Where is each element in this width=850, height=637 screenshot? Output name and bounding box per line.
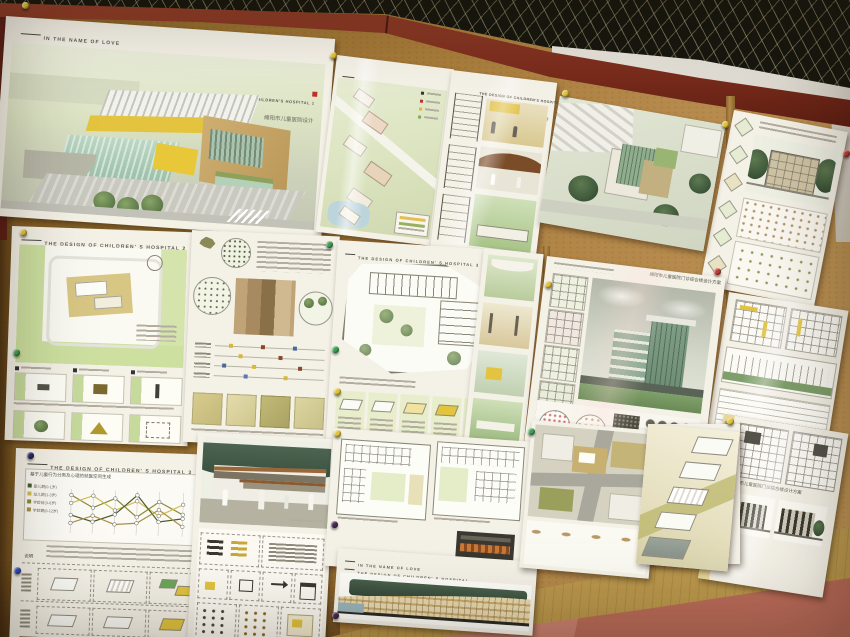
- poster-context-analysis: [183, 230, 340, 448]
- column: [488, 313, 493, 333]
- push-pin-blue: [14, 567, 21, 574]
- diagram-mark: [146, 422, 171, 439]
- row-label: [21, 573, 32, 591]
- mini-diagram: [129, 414, 182, 444]
- row-label: [194, 372, 210, 378]
- massing-cube: [339, 399, 363, 411]
- section-drawing: [337, 572, 532, 631]
- room-wing: [474, 471, 516, 504]
- diagram-mark: [34, 420, 48, 432]
- header-bars: [554, 262, 614, 274]
- context-site-plan: [528, 424, 658, 526]
- plan-tree: [447, 351, 462, 366]
- massing-cube: [403, 403, 427, 415]
- route-node: [261, 345, 265, 349]
- wall-section-detail: [437, 194, 470, 243]
- poster-details-renders: THE DESIGN OF CHILDREN'S HOSPITAL 1 绵阳市儿…: [430, 70, 557, 260]
- legend-bar: [427, 92, 441, 97]
- diagram-mark: [37, 384, 49, 390]
- legend-row: [398, 227, 424, 233]
- wing-glass: [209, 129, 265, 168]
- note-label: 说明: [24, 553, 33, 558]
- legend-chip: [418, 115, 421, 118]
- floor-plan: [785, 431, 843, 492]
- note-row: 说明: [24, 544, 34, 562]
- diagram-cell: [197, 568, 229, 600]
- diamond-plan-icon: [729, 145, 748, 164]
- push-pin-yellow: [545, 281, 552, 288]
- push-pin-yellow: [722, 121, 729, 128]
- push-pin-green: [528, 428, 535, 435]
- axon-map: [320, 77, 447, 239]
- building-cluster: [353, 88, 376, 108]
- green-blob: [318, 297, 327, 306]
- sketch-rows: [523, 520, 648, 574]
- render-thumb-atrium: [474, 350, 528, 397]
- route-node: [238, 354, 242, 358]
- route-line: [214, 365, 324, 371]
- hospital-cluster: [603, 140, 680, 207]
- roof-band: [461, 535, 511, 542]
- building-glass-tower: [644, 319, 690, 389]
- row-label: [195, 342, 211, 348]
- legend-column: [417, 92, 443, 128]
- arrow-head: [283, 581, 288, 589]
- legend-glyphs: [200, 607, 229, 634]
- floor-plan: [731, 423, 789, 484]
- massing-cell: [36, 606, 91, 636]
- massing-cube: [103, 616, 133, 629]
- render-thumb-green: [484, 254, 538, 301]
- row-label: [194, 352, 210, 358]
- push-pin-yellow: [22, 2, 29, 9]
- push-pin-green: [332, 346, 339, 353]
- push-pin-yellow: [562, 90, 569, 97]
- floor-plan-thumb: [729, 299, 787, 349]
- waterfront-building: [338, 205, 361, 225]
- figure: [491, 121, 496, 133]
- hospital-block: [572, 446, 608, 475]
- terrace: [408, 474, 424, 505]
- row-label: [194, 362, 210, 368]
- legend-bar: [426, 100, 440, 105]
- legend-box: [394, 211, 430, 237]
- legend-row: [399, 216, 425, 222]
- figure: [308, 494, 314, 510]
- mini-diagram: [14, 372, 67, 402]
- route-node: [278, 356, 282, 360]
- low-building: [476, 224, 529, 242]
- legend-chip: [421, 92, 424, 95]
- caption-bar: [137, 370, 167, 375]
- site-photo-grid: [234, 278, 296, 337]
- plan-caption: [339, 376, 415, 388]
- yellow-zone: [292, 619, 302, 628]
- poster-long-section: IN THE NAME OF LOVE THE DESIGN OF CHILDR…: [333, 548, 538, 636]
- floor-plan-3f: [432, 441, 525, 521]
- concept-caption: [401, 420, 425, 433]
- diagram-cell: [261, 572, 293, 604]
- mini-diagram: [130, 376, 183, 406]
- elevation-drawing: [773, 500, 828, 547]
- legend-table: [237, 604, 279, 637]
- figure: [258, 489, 265, 509]
- title-dash: [21, 240, 41, 242]
- legend-table: [195, 602, 237, 637]
- diagram-panel: [193, 528, 327, 637]
- poster-exploded-plates: [636, 424, 740, 571]
- yellow-mark: [205, 582, 215, 591]
- road-horizontal: [528, 472, 658, 487]
- flow-text: [268, 543, 317, 563]
- hospital-building: [608, 315, 689, 390]
- diamond-plan-icon: [713, 227, 732, 246]
- push-pin-yellow: [334, 430, 341, 437]
- district-map-thumb: [259, 395, 290, 428]
- render-thumb-landscape: [469, 398, 523, 443]
- figure: [490, 174, 495, 185]
- massing-cube: [47, 614, 77, 627]
- yellow-panel: [489, 101, 520, 115]
- mini-diagram: [72, 374, 125, 404]
- route-node: [222, 363, 226, 367]
- massing-cube: [50, 577, 79, 591]
- road: [538, 198, 713, 231]
- china-map-icon: [199, 236, 216, 249]
- diamond-plan-icon: [734, 117, 753, 136]
- push-pin-purple: [332, 612, 339, 619]
- behavior-chart-panel: 基于儿童行为分类及心理的就医空间生成 婴儿期(0-1岁) 幼儿期(1-3岁) 学…: [23, 468, 215, 547]
- floor-plate: [666, 486, 709, 506]
- route-node: [293, 347, 297, 351]
- building-cluster: [363, 161, 392, 187]
- massing-cube: [159, 579, 178, 588]
- behavior-route-rows: [193, 342, 327, 392]
- yellow-wall: [739, 305, 757, 312]
- legend-table: [279, 607, 321, 637]
- landscape-render: [469, 194, 537, 253]
- plan-notes: [136, 324, 177, 341]
- push-pin-green: [13, 349, 20, 356]
- canopy: [491, 259, 534, 273]
- push-pin-yellow: [334, 388, 341, 395]
- concept-caption: [369, 418, 393, 431]
- massing-cell: [91, 608, 146, 637]
- yellow-bar-glyphs: [231, 541, 248, 558]
- massing-cube: [371, 401, 395, 413]
- push-pin-green: [326, 241, 333, 248]
- white-mass-right: [680, 124, 722, 158]
- diagram-cell: [229, 570, 261, 602]
- caption-chip: [15, 366, 19, 370]
- building-core: [578, 452, 595, 463]
- concept-caption: [433, 422, 457, 435]
- poster-siteplan-analysis: THE DESIGN OF CHILDREN' S HOSPITAL 2: [5, 226, 195, 446]
- district-map-thumb: [293, 397, 324, 430]
- figure: [516, 177, 521, 188]
- diagram-mark: [90, 422, 108, 435]
- interior-render-warm: [482, 98, 549, 147]
- push-pin-yellow: [330, 52, 337, 59]
- district-map-thumb: [225, 394, 256, 427]
- push-pin-yellow: [727, 418, 734, 425]
- floor-plate: [691, 436, 734, 456]
- title-dash: [21, 33, 41, 35]
- building-yellow-band: [86, 115, 214, 133]
- diagram-cell: [199, 532, 261, 567]
- yellow-wall: [761, 321, 767, 337]
- figure: [222, 489, 228, 505]
- building-block: [75, 281, 108, 297]
- plan-thumb: [544, 309, 584, 347]
- lit-band: [460, 543, 510, 554]
- outline-mark: [239, 579, 254, 592]
- red-logo-icon: [312, 92, 317, 97]
- plan-core: [813, 444, 829, 458]
- wall-section-detail: [444, 144, 477, 191]
- route-line: [215, 355, 325, 361]
- legend-bar: [424, 116, 438, 121]
- ground-plate: [641, 537, 691, 560]
- massing-cell: [37, 568, 92, 602]
- title-dash: [345, 254, 355, 256]
- legend-glyphs: [242, 610, 271, 637]
- room-band: [441, 447, 520, 468]
- green-roof: [653, 148, 678, 170]
- massing-cube: [435, 404, 459, 416]
- route-node: [298, 367, 302, 371]
- route-node: [252, 365, 256, 369]
- caption-bar: [79, 368, 109, 373]
- canopy-render: [476, 146, 543, 195]
- city-block: [541, 433, 575, 462]
- massing-cube: [106, 579, 135, 593]
- row-label: [20, 609, 31, 627]
- location-globe: [220, 237, 251, 268]
- plan-core: [744, 431, 762, 445]
- room-mark: [299, 583, 316, 601]
- green-roof: [438, 467, 468, 503]
- push-pin-darkblue: [27, 452, 34, 459]
- floor-plan-thumb: [785, 308, 843, 358]
- elevation-render: [745, 135, 839, 208]
- figure: [512, 126, 517, 137]
- massing-cell: [93, 570, 148, 604]
- caption-chip: [131, 370, 135, 374]
- caption-bar: [21, 366, 51, 371]
- wall-section-detail: [450, 93, 483, 142]
- diagram-cell: [293, 573, 323, 604]
- render-thumb-warm: [479, 302, 533, 349]
- black-bar-glyphs: [207, 540, 224, 557]
- push-pin-red: [843, 150, 850, 157]
- push-pin-yellow: [20, 229, 27, 236]
- greenery-circle-diagram: [298, 291, 333, 326]
- floor-plate: [679, 461, 722, 481]
- chart-title-cn: 基于儿童行为分类及心理的就医空间生成: [30, 472, 111, 481]
- figure: [284, 495, 289, 509]
- mini-diagram: [71, 412, 124, 442]
- ward-room-strip: [369, 272, 458, 299]
- building-strip: [476, 420, 515, 432]
- tree: [812, 519, 825, 537]
- courtyard: [370, 472, 406, 502]
- legend-chip: [420, 99, 423, 102]
- room-band: [345, 444, 412, 467]
- mini-plan: [286, 614, 313, 637]
- entrance-render: [199, 436, 331, 529]
- title-dash: [344, 569, 354, 571]
- hospital-footprint: [66, 273, 133, 317]
- mini-diagram: [13, 410, 66, 440]
- route-node: [284, 376, 288, 380]
- push-pin-red: [714, 268, 721, 275]
- poster-hero-render: IN THE NAME OF LOVE THE DESIGN OF CHILDR…: [0, 16, 335, 239]
- diagram-cell: [261, 536, 325, 571]
- route-node: [229, 344, 233, 348]
- diagram-mark: [93, 384, 107, 394]
- massing-row-2: [19, 600, 208, 637]
- curved-canopy: [476, 150, 543, 175]
- aerial-render: THE DESIGN OF CHILDREN'S HOSPITAL 1 绵阳市儿…: [1, 42, 326, 229]
- green-blob: [304, 298, 314, 308]
- site-circle-diagram: [192, 276, 232, 316]
- title-dash: [27, 464, 47, 466]
- push-pin-purple: [331, 521, 338, 528]
- master-plan: [15, 244, 187, 368]
- water-section: [338, 602, 365, 613]
- behavior-bump-chart: [24, 483, 212, 541]
- tree-mass: [687, 172, 712, 196]
- floor-plate: [654, 511, 697, 531]
- poster-entrance-render: [187, 432, 336, 637]
- board-subtitle-cn: 绵阳市儿童医院设计: [264, 115, 314, 124]
- legend-chip: [419, 107, 422, 110]
- building-block: [94, 296, 123, 310]
- route-node: [244, 374, 248, 378]
- perspective-render: [578, 278, 716, 414]
- legend-bar: [425, 108, 439, 113]
- note-paragraph: [46, 545, 206, 563]
- caption-chip: [73, 368, 77, 372]
- room-wing: [342, 468, 366, 503]
- intro-paragraph: [256, 241, 331, 274]
- plan-thumb: [540, 344, 580, 382]
- diamond-plan-icon: [723, 172, 742, 191]
- courtyard: [372, 304, 426, 347]
- district-map-thumb: [192, 392, 223, 425]
- building-cluster: [343, 135, 368, 157]
- analysis-grid: [13, 366, 183, 442]
- route-line: [214, 375, 324, 381]
- plan-thumb: [549, 273, 589, 311]
- green-block: [538, 487, 574, 512]
- exhibition-wall-photo: 绵阳市儿童医院设计 绵阳市儿童医院门诊综合楼设计方案 IN THE NAME O…: [0, 0, 850, 637]
- plan-tree: [359, 344, 372, 357]
- floor-plan-2f: [336, 439, 431, 521]
- massing-cube: [159, 618, 185, 631]
- column: [514, 316, 519, 336]
- tree-mass: [566, 173, 600, 204]
- yellow-wall: [796, 318, 803, 336]
- diamond-plan-icon: [718, 200, 737, 219]
- yellow-feature: [485, 367, 502, 381]
- diagram-mark: [155, 384, 159, 398]
- cloud: [595, 282, 647, 310]
